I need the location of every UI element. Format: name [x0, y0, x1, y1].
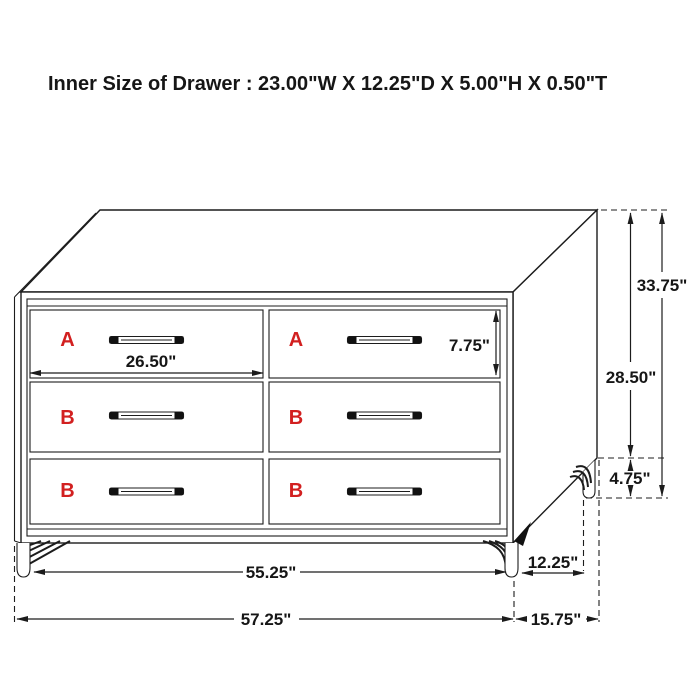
dresser-top-face [21, 210, 597, 292]
dim-label-drawer-width: 26.50" [126, 352, 177, 371]
handle-cap [348, 412, 357, 419]
handle-cap [348, 337, 357, 344]
handle-cap [413, 337, 422, 344]
drawer-label-b3: B [60, 480, 74, 502]
dim-label-total-height: 33.75" [637, 276, 688, 295]
drawer-label-a2: A [289, 329, 303, 351]
dim-label-drawer-height: 7.75" [449, 336, 490, 355]
handle-cap [348, 488, 357, 495]
handle-cap [413, 488, 422, 495]
dresser-outline [15, 210, 598, 543]
dim-label-base-width: 55.25" [246, 563, 297, 582]
dresser-front-face [21, 292, 513, 543]
drawer-label-a1: A [60, 329, 74, 351]
left-edge-bottom [15, 541, 22, 543]
dim-label-overall-width: 57.25" [241, 610, 292, 629]
handle-cap [413, 412, 422, 419]
drawer-label-b2: B [289, 407, 303, 429]
drawer-label-b4: B [289, 480, 303, 502]
leg-post [17, 543, 30, 577]
handle-cap [110, 488, 119, 495]
handle-cap [110, 412, 119, 419]
handle-cap [175, 337, 184, 344]
diagram-canvas: Inner Size of Drawer : 23.00"W X 12.25"D… [0, 0, 700, 700]
handle-cap [175, 488, 184, 495]
drawer-label-b1: B [60, 407, 74, 429]
dim-label-base-depth: 12.25" [528, 553, 579, 572]
handle-cap [110, 337, 119, 344]
dim-label-overall-depth: 15.75" [531, 610, 582, 629]
dim-label-leg-height: 4.75" [609, 469, 650, 488]
dim-label-case-height: 28.50" [606, 368, 657, 387]
dimension-diagram: Inner Size of Drawer : 23.00"W X 12.25"D… [0, 0, 700, 700]
leg-post [505, 543, 518, 577]
diagram-title: Inner Size of Drawer : 23.00"W X 12.25"D… [48, 73, 607, 95]
handle-cap [175, 412, 184, 419]
